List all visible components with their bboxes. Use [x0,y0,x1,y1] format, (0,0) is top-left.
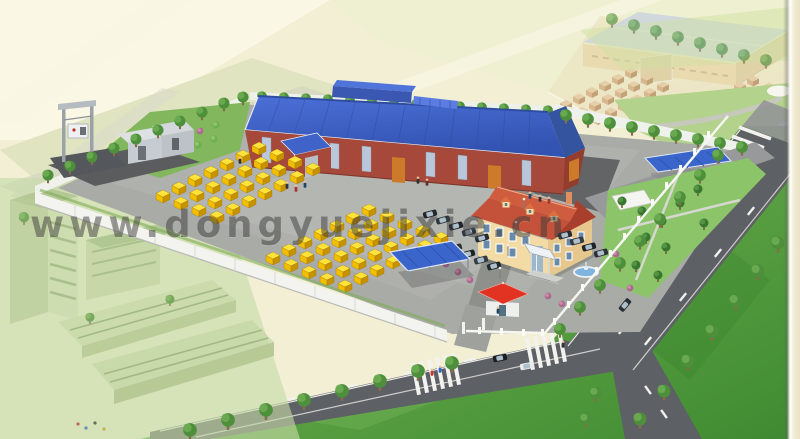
page-edge [783,0,800,439]
office-chimney [566,192,572,204]
scene-canvas [0,0,800,439]
factory-aerial-rendering: www.dongyuejixie.cn [0,0,800,439]
